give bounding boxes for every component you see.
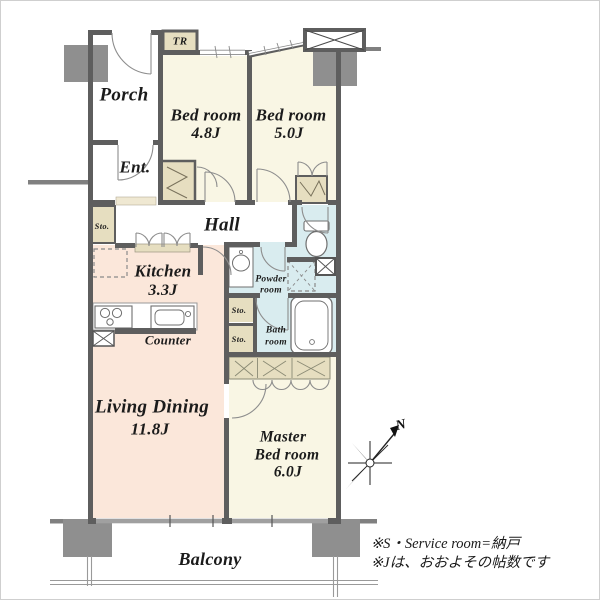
master-size: 6.0J <box>274 464 302 480</box>
stub-bottom-right <box>360 519 377 524</box>
entrance-label: Ent. <box>120 159 151 176</box>
pillar-top-right <box>313 52 357 86</box>
pillar-top-left <box>64 45 108 82</box>
powder-label-1: Powder <box>255 275 286 285</box>
kitchen-label: Kitchen <box>135 263 192 280</box>
master-label-1: Master <box>260 429 307 445</box>
kitchen-sink-basin <box>155 310 184 325</box>
stub-top-right <box>366 47 381 51</box>
bedroom1-label: Bed room <box>171 107 242 124</box>
bathtub-drain <box>310 340 315 345</box>
entry-storage-label: Sto. <box>95 222 110 231</box>
floor-plan-canvas: Porch TR Bed room 4.8J Bed room 5.0J Ent… <box>0 0 600 600</box>
powder-basin <box>233 255 250 271</box>
bedroom2-size: 5.0J <box>274 126 303 142</box>
bath-label-1: Bath <box>266 326 286 336</box>
storage-upper-label: Sto. <box>232 306 247 315</box>
note-jo-size: ※Jは、おおよその帖数です <box>371 556 549 571</box>
balcony-label: Balcony <box>178 550 241 568</box>
note-service-room: ※S・Service room=納戸 <box>371 537 520 552</box>
entry-step <box>116 197 156 205</box>
bedroom1-size: 4.8J <box>191 126 220 142</box>
floor-plan-drawing <box>0 0 600 600</box>
stove-burner <box>100 308 109 317</box>
hall-label: Hall <box>204 216 240 235</box>
storage-lower-label: Sto. <box>232 335 247 344</box>
stub-bottom-left <box>50 519 63 524</box>
pillar-bottom-right <box>312 519 360 557</box>
kitchen-size: 3.3J <box>148 283 177 299</box>
powder-label-2: room <box>260 286 282 296</box>
living-size: 11.8J <box>131 421 170 438</box>
trunk-room-label: TR <box>173 37 188 48</box>
living-window <box>96 519 222 524</box>
stub-left <box>28 180 88 185</box>
stove-burner <box>107 319 113 325</box>
bath-label-2: room <box>265 338 287 348</box>
porch-label: Porch <box>100 86 149 105</box>
master-label-2: Bed room <box>255 447 320 463</box>
toilet-bowl <box>306 232 327 257</box>
kitchen-faucet <box>185 311 190 316</box>
powder-faucet <box>239 250 242 253</box>
compass <box>346 425 399 489</box>
stove-burner <box>112 308 121 317</box>
counter-label: Counter <box>145 334 191 347</box>
master-window <box>232 519 328 524</box>
pillar-bottom-left <box>63 519 112 557</box>
bedroom2-label: Bed room <box>256 107 327 124</box>
living-label: Living Dining <box>95 398 209 417</box>
